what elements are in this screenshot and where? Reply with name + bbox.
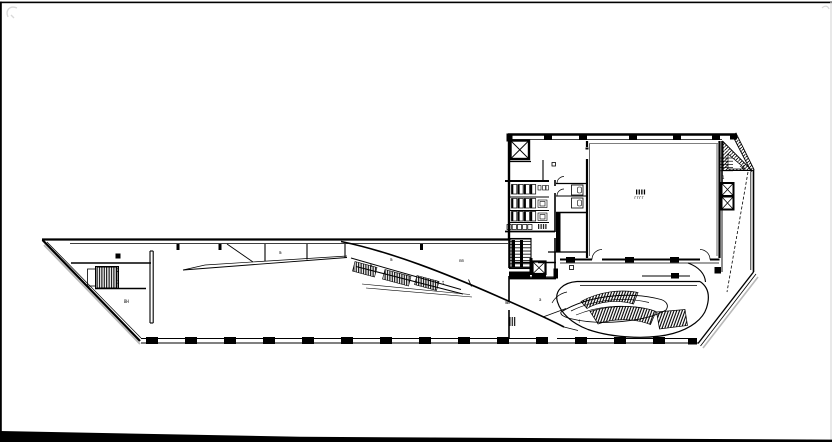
toilet-core xyxy=(505,180,556,279)
mullion-wall xyxy=(150,251,153,323)
elevator-core xyxy=(530,258,547,278)
corner-mark-topleft xyxy=(7,7,17,18)
sheet-border xyxy=(0,2,832,442)
stair-west xyxy=(88,267,119,289)
wc-fixture xyxy=(578,187,582,193)
door-arc xyxy=(592,250,602,260)
main-hall xyxy=(560,141,720,263)
annotation: 2 xyxy=(117,268,120,273)
wc-fixture xyxy=(578,200,582,206)
door-arc xyxy=(700,250,710,260)
seating-hatch-1 xyxy=(581,291,638,308)
hall-center-mark xyxy=(636,190,645,195)
chamfer-shadow xyxy=(703,277,758,348)
elevator-x-icon xyxy=(722,197,734,210)
stair-core xyxy=(510,239,532,269)
bottom-wall-columns xyxy=(146,337,697,345)
elevator-x-icon xyxy=(722,183,734,196)
column-mark xyxy=(552,163,556,167)
border-top xyxy=(0,2,832,4)
elevator-x-icon xyxy=(533,262,546,275)
side-steps xyxy=(510,317,516,326)
seating-hatch-3 xyxy=(657,310,688,330)
column-mark xyxy=(715,267,722,274)
wing-west-diagonal-wall xyxy=(43,240,141,341)
floor-plan-drawing: 2 3 BH m m B t nm mm rrrr 1 f a xyxy=(0,0,832,442)
annotation: m xyxy=(279,250,282,255)
border-bottom xyxy=(0,431,832,442)
border-left xyxy=(0,2,2,442)
door-arc xyxy=(557,177,564,184)
elevator-x-icon xyxy=(511,141,530,160)
corner-mark-topright xyxy=(822,6,829,9)
left-wing xyxy=(42,240,698,345)
annotation: mm xyxy=(505,300,510,305)
annotation: a xyxy=(539,297,542,302)
ramp-wedge xyxy=(183,244,347,270)
sinks xyxy=(507,225,532,230)
elevator-nw xyxy=(510,141,531,162)
annotation: 3 xyxy=(117,280,120,285)
annotation: BH xyxy=(124,299,129,304)
top-wall-ticks xyxy=(177,244,424,250)
urinals xyxy=(538,186,549,221)
door-arc xyxy=(557,189,564,196)
diagonal-shadow xyxy=(44,245,140,344)
column-mark xyxy=(116,254,121,259)
border-right xyxy=(830,2,831,442)
annotation: m xyxy=(390,257,393,262)
annotation: 1 xyxy=(722,175,725,180)
annotation: f xyxy=(578,319,581,324)
cad-sheet: 2 3 BH m m B t nm mm rrrr 1 f a xyxy=(0,0,832,442)
annotation: rrrr xyxy=(634,195,644,200)
column-mark xyxy=(570,266,574,270)
east-rooms xyxy=(548,177,587,270)
amphitheater xyxy=(543,282,708,338)
annotation: t xyxy=(442,280,445,285)
annotation: nm xyxy=(459,258,464,263)
